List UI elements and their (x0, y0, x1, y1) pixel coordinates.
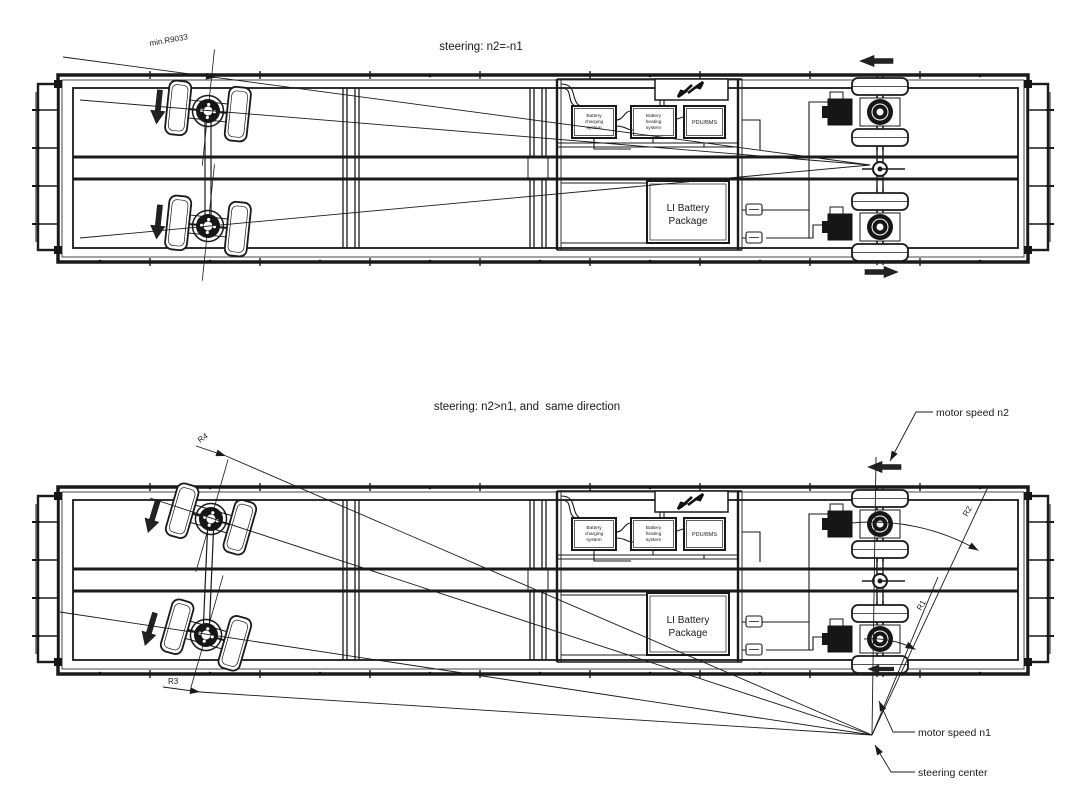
motor-speed-n1-callout: motor speed n1 (876, 700, 991, 739)
rear-n2-arrow (868, 462, 901, 473)
motor-speed-n2-label: motor speed n2 (936, 407, 1009, 419)
diagram-pivot-steering: steering: n2=-n1 min.R9033 (32, 32, 1054, 285)
motor-speed-n2-callout: motor speed n2 (887, 407, 1009, 463)
diagram-differential-steering: steering: n2>n1, and same direction R1 R… (32, 401, 1054, 779)
min-radius-label: min.R9033 (149, 32, 189, 48)
technical-drawing-page: Battery charging system Battery heating … (0, 0, 1080, 795)
steering-center-label: steering center (918, 767, 988, 779)
motor-speed-n1-label: motor speed n1 (918, 727, 991, 739)
top-title: steering: n2=-n1 (439, 41, 522, 53)
r3-label: R3 (168, 677, 179, 686)
diagram-canvas: Battery charging system Battery heating … (0, 0, 1080, 795)
steering-center-callout: steering center (872, 743, 988, 779)
bottom-title: steering: n2>n1, and same direction (434, 401, 620, 413)
rear-n2-arrow-left (860, 56, 893, 67)
rear-n1-arrow-right (865, 267, 898, 278)
r4-label: R4 (196, 431, 210, 445)
